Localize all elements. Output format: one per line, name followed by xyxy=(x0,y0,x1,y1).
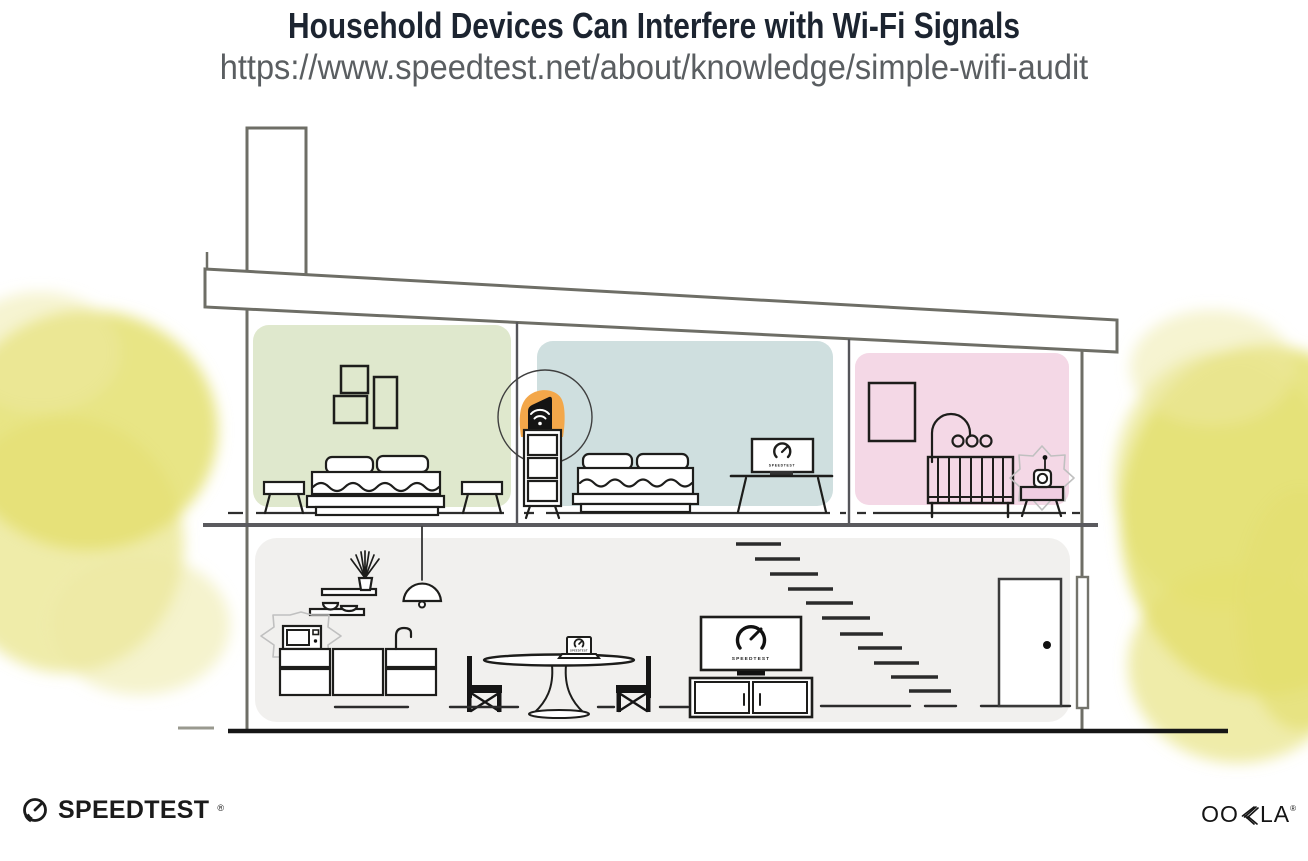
infographic-canvas: Household Devices Can Interfere with Wi-… xyxy=(0,0,1308,861)
speedtest-logo: SPEEDTEST® xyxy=(20,795,224,825)
foliage-left xyxy=(0,292,230,695)
bedroom-tv: SPEEDTEST xyxy=(752,439,813,475)
kitchen-cabinets xyxy=(280,649,436,695)
ookla-registered-mark: ® xyxy=(1290,804,1296,813)
living-tv-label: SPEEDTEST xyxy=(732,656,770,662)
foliage-right xyxy=(1114,310,1308,763)
downspout xyxy=(1077,577,1088,708)
entry-door xyxy=(999,579,1061,706)
shelf-bowl xyxy=(323,603,338,610)
chimney xyxy=(247,128,306,278)
bedroom-tv-label: SPEEDTEST xyxy=(769,464,796,468)
speedtest-wordmark: SPEEDTEST xyxy=(58,796,209,825)
ookla-wordmark-oo: OO xyxy=(1201,801,1239,828)
door-knob xyxy=(1043,641,1051,649)
ookla-wordmark-la: LA xyxy=(1260,801,1290,828)
house-illustration: SPEEDTEST xyxy=(0,0,1308,861)
shelf-bowl xyxy=(341,606,357,611)
living-tv: SPEEDTEST xyxy=(701,617,801,676)
dresser xyxy=(524,430,561,518)
ookla-k-icon xyxy=(1241,806,1259,825)
ookla-logo: OO LA® xyxy=(1201,801,1296,828)
speedtest-registered-mark: ® xyxy=(217,803,224,813)
laptop-label: SPEEDTEST xyxy=(570,650,588,653)
tv-console xyxy=(690,678,812,717)
microwave xyxy=(283,626,321,649)
speedtest-gauge-icon xyxy=(20,795,50,825)
